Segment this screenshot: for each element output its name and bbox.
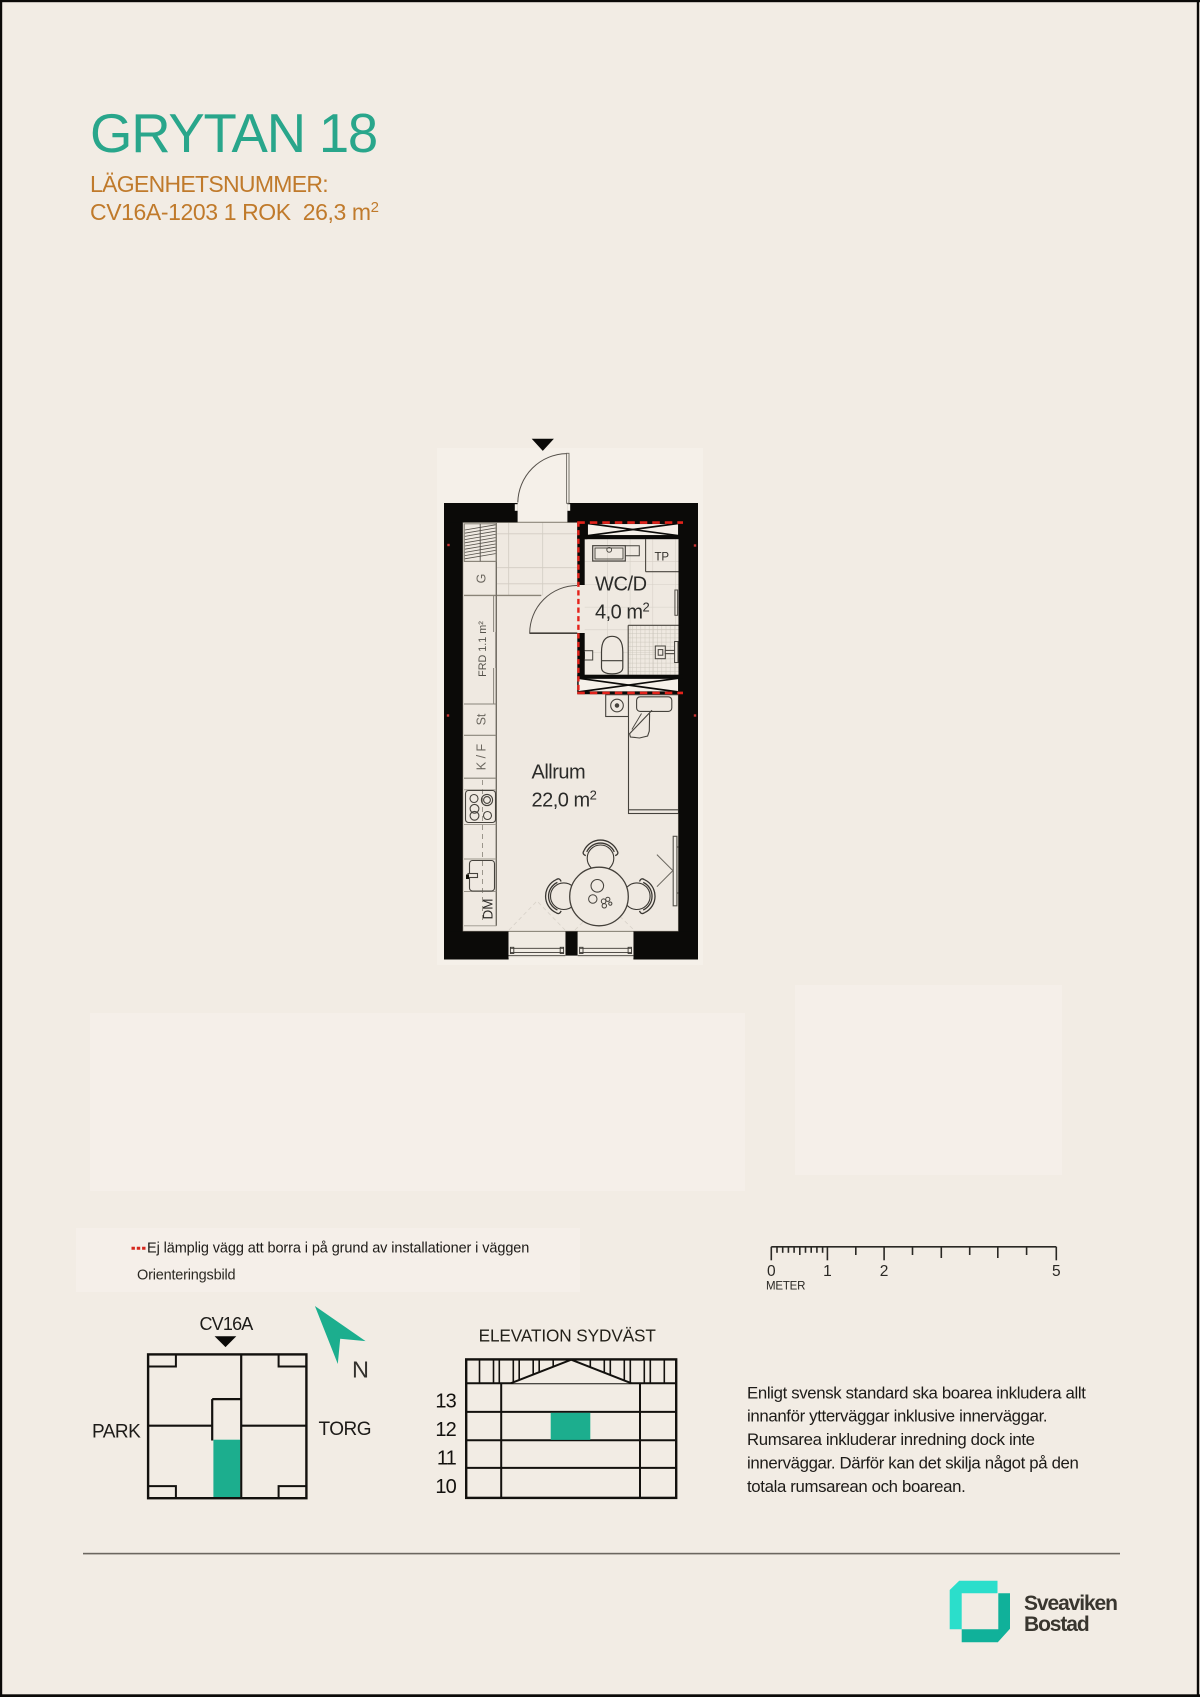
svg-text:CV16A-1203 1 ROK 26,3 m2: CV16A-1203 1 ROK 26,3 m2 xyxy=(90,199,379,225)
svg-text:Enligt svensk standard ska boa: Enligt svensk standard ska boarea inklud… xyxy=(747,1383,1086,1402)
svg-text:N: N xyxy=(352,1356,369,1382)
svg-text:5: 5 xyxy=(1052,1263,1061,1280)
svg-text:Rumsarea inkluderar inredning: Rumsarea inkluderar inredning dock inte xyxy=(747,1430,1035,1449)
svg-text:10: 10 xyxy=(435,1476,456,1498)
svg-text:St: St xyxy=(474,713,488,725)
svg-text:Ej lämplig vägg att borra i på: Ej lämplig vägg att borra i på grund av … xyxy=(147,1241,529,1257)
svg-text:12: 12 xyxy=(435,1419,456,1441)
svg-text:innerväggar. Därför kan det sk: innerväggar. Därför kan det skilja något… xyxy=(747,1454,1079,1473)
svg-text:PARK: PARK xyxy=(92,1422,141,1443)
svg-text:13: 13 xyxy=(435,1391,456,1413)
svg-text:CV16A: CV16A xyxy=(199,1314,253,1334)
svg-text:Bostad: Bostad xyxy=(1024,1613,1089,1636)
svg-text:TP: TP xyxy=(655,552,670,564)
svg-text:METER: METER xyxy=(766,1281,805,1293)
svg-text:G: G xyxy=(474,574,488,584)
svg-text:FRD 1.1 m²: FRD 1.1 m² xyxy=(477,621,489,677)
svg-text:DM: DM xyxy=(481,899,496,920)
svg-text:1: 1 xyxy=(823,1263,832,1280)
svg-text:K / F: K / F xyxy=(474,743,488,770)
svg-text:totala rumsarean och boarean.: totala rumsarean och boarean. xyxy=(747,1477,965,1496)
svg-text:2: 2 xyxy=(880,1263,889,1280)
svg-text:Orienteringsbild: Orienteringsbild xyxy=(137,1268,235,1284)
svg-text:22,0 m2: 22,0 m2 xyxy=(532,788,597,812)
svg-text:LÄGENHETSNUMMER:: LÄGENHETSNUMMER: xyxy=(90,171,328,197)
svg-text:Sveaviken: Sveaviken xyxy=(1024,1592,1117,1615)
svg-text:innanför ytterväggar inklusive: innanför ytterväggar inklusive innervägg… xyxy=(747,1407,1047,1426)
svg-text:4,0 m2: 4,0 m2 xyxy=(595,600,650,624)
svg-text:0: 0 xyxy=(767,1263,776,1280)
svg-text:11: 11 xyxy=(437,1448,457,1470)
svg-text:WC/D: WC/D xyxy=(595,574,647,596)
svg-text:GRYTAN 18: GRYTAN 18 xyxy=(90,103,377,164)
svg-text:Allrum: Allrum xyxy=(532,762,586,784)
svg-text:TORG: TORG xyxy=(319,1419,372,1440)
svg-text:ELEVATION SYDVÄST: ELEVATION SYDVÄST xyxy=(479,1326,657,1346)
